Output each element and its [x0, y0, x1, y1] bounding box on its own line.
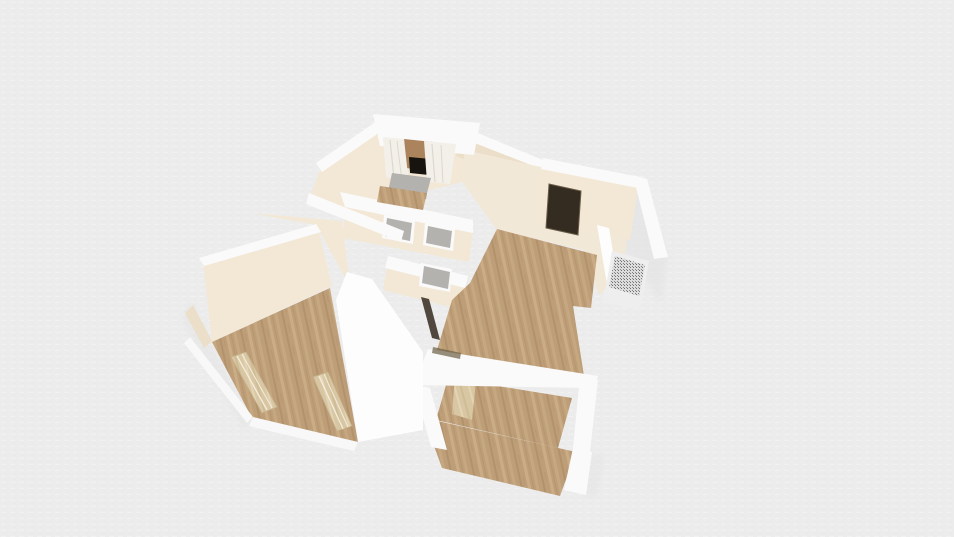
floor-plan-3d-view[interactable] — [0, 0, 954, 537]
dark-door[interactable] — [546, 184, 581, 235]
floor-plan-canvas[interactable] — [0, 0, 954, 537]
